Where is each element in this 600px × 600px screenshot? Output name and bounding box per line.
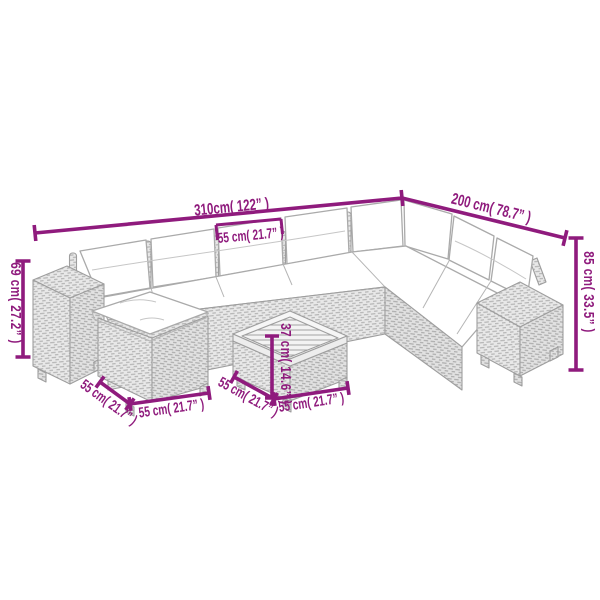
dim-backrest-height: 85 cm( 33.5” ) <box>569 238 598 370</box>
left-armrest-cube <box>33 266 104 384</box>
product-dimension-image: 310cm( 122” ) 200 cm( 78.7” ) 55 cm( 21.… <box>0 0 600 600</box>
sofa-set-sketch <box>33 200 563 416</box>
dim-armrest-height-label: 69 cm( 27.2” ) <box>8 262 25 343</box>
dim-total-width-label: 310cm( 122” ) <box>193 194 269 219</box>
dim-backrest-height-label: 85 cm( 33.5” ) <box>581 251 598 332</box>
right-armrest-cube <box>477 282 563 386</box>
diagram-canvas: 310cm( 122” ) 200 cm( 78.7” ) 55 cm( 21.… <box>0 0 600 600</box>
dim-armrest-height: 69 cm( 27.2” ) <box>8 261 31 357</box>
dim-table-height-label: 37 cm( 14.6” ) <box>278 323 295 404</box>
